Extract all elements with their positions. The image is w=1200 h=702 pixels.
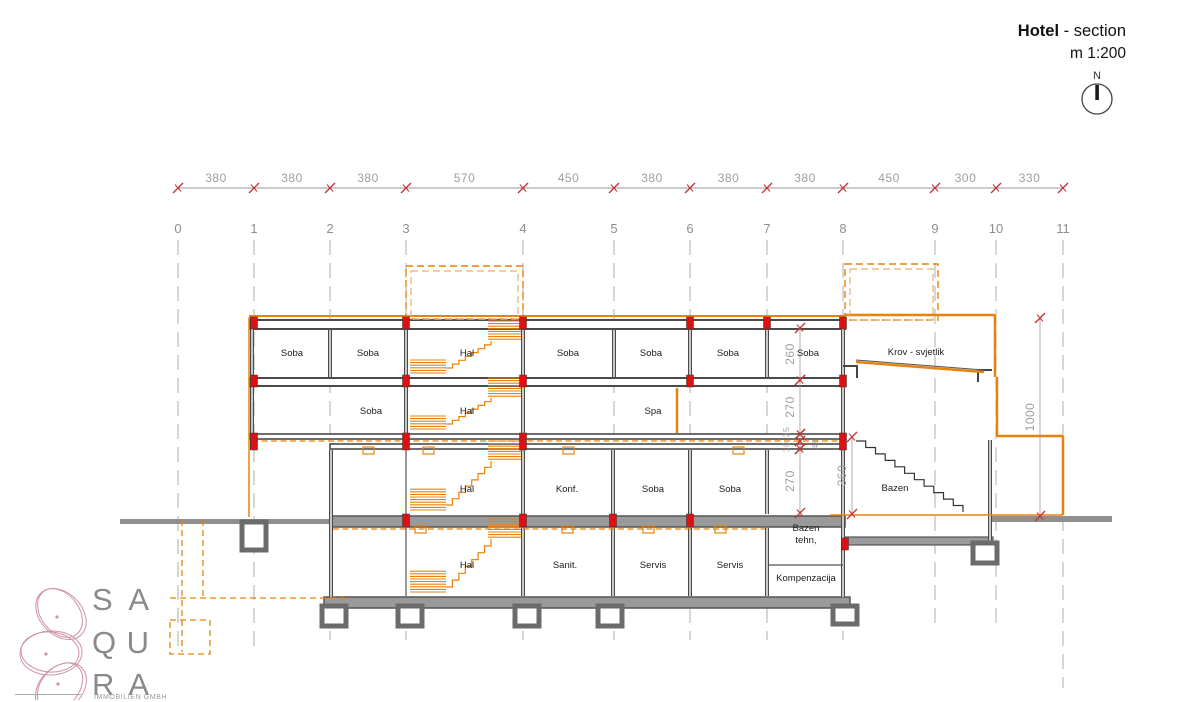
grid-number: 3: [402, 221, 409, 236]
column-marker: [840, 375, 847, 387]
title-name: Hotel: [1018, 22, 1059, 40]
dimension-value: 360: [835, 465, 849, 487]
title-suffix: - section: [1059, 22, 1126, 40]
floor-slab-2a: [250, 434, 845, 439]
room-label: Bazen: [793, 523, 820, 534]
logo-letter: S: [92, 584, 113, 615]
dimension-value: 380: [718, 171, 740, 185]
floor-slab-3: [250, 378, 845, 386]
room-label: Soba: [640, 348, 663, 359]
grid-number: 1: [250, 221, 257, 236]
room-label: Servis: [717, 560, 744, 571]
dimension-value: 48: [810, 439, 820, 449]
grid-number: 9: [931, 221, 938, 236]
room-label: Hal: [460, 348, 474, 359]
drawing-title: Hotel - section: [1018, 20, 1126, 43]
column-marker: [520, 375, 527, 387]
hotel-section-drawing: { "title": { "name": "Hotel", "suffix": …: [0, 0, 1200, 700]
dimension-value: 260: [783, 343, 797, 365]
room-label: Sanit.: [553, 560, 577, 571]
room-label: Hal: [460, 560, 474, 571]
column-marker: [251, 433, 258, 450]
dimension-value: 35: [781, 427, 791, 437]
column-marker: [403, 514, 410, 527]
room-label: Soba: [719, 484, 742, 495]
title-block: Hotel - section m 1:200: [1018, 20, 1126, 65]
grid-number: 6: [686, 221, 693, 236]
column-marker: [251, 375, 258, 387]
room-label: Soba: [281, 348, 304, 359]
building-structure: [120, 315, 1112, 626]
room-label: Konf.: [556, 484, 578, 495]
room-label: Servis: [640, 560, 667, 571]
column-marker: [403, 375, 410, 387]
room-label: Spa: [645, 406, 663, 417]
room-label: Krov - svjetlik: [888, 347, 945, 358]
column-marker: [840, 433, 847, 450]
footing: [322, 606, 346, 626]
footing: [833, 606, 857, 624]
column-marker: [840, 317, 847, 329]
room-label: Hal: [460, 406, 474, 417]
ground-left: [120, 519, 332, 524]
dimension-value: 330: [1019, 171, 1041, 185]
compass-needle: [1095, 85, 1099, 100]
top-dimension-chain: 380380380570450380380380450300330: [173, 171, 1068, 193]
column-marker: [520, 433, 527, 450]
room-label: Soba: [360, 406, 383, 417]
logo-letter: A: [128, 584, 149, 615]
vertical-dimensions: 2602703510270483601000: [781, 313, 1045, 521]
column-marker: [251, 317, 258, 329]
room-label: Soba: [557, 348, 580, 359]
dimension-value: 380: [205, 171, 227, 185]
column-marker: [610, 514, 617, 527]
footing: [398, 606, 422, 626]
column-marker: [687, 375, 694, 387]
room-label: tehn,: [795, 535, 816, 546]
dimension-value: 1000: [1023, 403, 1037, 432]
footing: [973, 543, 997, 563]
logo-letter: Q: [92, 627, 116, 658]
room-label: Soba: [357, 348, 380, 359]
room-label: Hal: [460, 484, 474, 495]
grid-number: 11: [1056, 221, 1070, 236]
skylight-glass-line: [856, 360, 984, 370]
logo-letter-row: QU: [92, 627, 149, 658]
logo-letter-row: SA: [92, 584, 149, 615]
dimension-value: 380: [794, 171, 816, 185]
roof-slab: [250, 320, 845, 329]
dimension-value: 380: [281, 171, 303, 185]
room-label: Soba: [642, 484, 665, 495]
dimension-value: 450: [558, 171, 580, 185]
grid-number: 10: [989, 221, 1003, 236]
drawing-scale: m 1:200: [1018, 43, 1126, 65]
room-label: Kompenzacija: [776, 573, 836, 584]
dimension-value: 380: [357, 171, 379, 185]
compass-n-label: N: [1093, 70, 1101, 82]
dimension-value: 380: [641, 171, 663, 185]
dimension-value: 270: [783, 396, 797, 418]
roof-dashed-volumes: [406, 264, 938, 320]
grid-number: 8: [839, 221, 846, 236]
room-label: Soba: [797, 348, 820, 359]
column-marker: [687, 514, 694, 527]
grid-number: 0: [174, 221, 181, 236]
footing: [515, 606, 539, 626]
column-marker: [842, 538, 849, 550]
footing: [598, 606, 622, 626]
column-marker: [520, 514, 527, 527]
logo-underline: [15, 694, 81, 695]
dimension-value: 450: [878, 171, 900, 185]
column-marker: [403, 317, 410, 329]
section-drawing-canvas: 01234567891011 3803803805704503803803804…: [0, 0, 1200, 700]
grid-number: 5: [610, 221, 617, 236]
logo-letters: SAQURA: [92, 584, 149, 700]
room-label: Soba: [717, 348, 740, 359]
logo-flower-icon: [19, 579, 97, 700]
logo-letter: U: [127, 627, 149, 658]
compass: N: [1082, 70, 1112, 114]
grid-number: 2: [326, 221, 333, 236]
footing: [242, 522, 266, 550]
column-marker: [687, 317, 694, 329]
grid-number: 4: [519, 221, 526, 236]
column-marker: [764, 317, 771, 329]
column-marker: [403, 433, 410, 450]
pool-stairs: [856, 441, 963, 512]
room-label: Bazen: [882, 483, 909, 494]
column-marker: [520, 317, 527, 329]
grid-number: 7: [763, 221, 770, 236]
dimension-value: 300: [955, 171, 977, 185]
dimension-value: 570: [454, 171, 476, 185]
dimension-value: 10: [781, 442, 791, 452]
ground-right: [990, 516, 1112, 522]
dimension-value: 270: [783, 470, 797, 492]
